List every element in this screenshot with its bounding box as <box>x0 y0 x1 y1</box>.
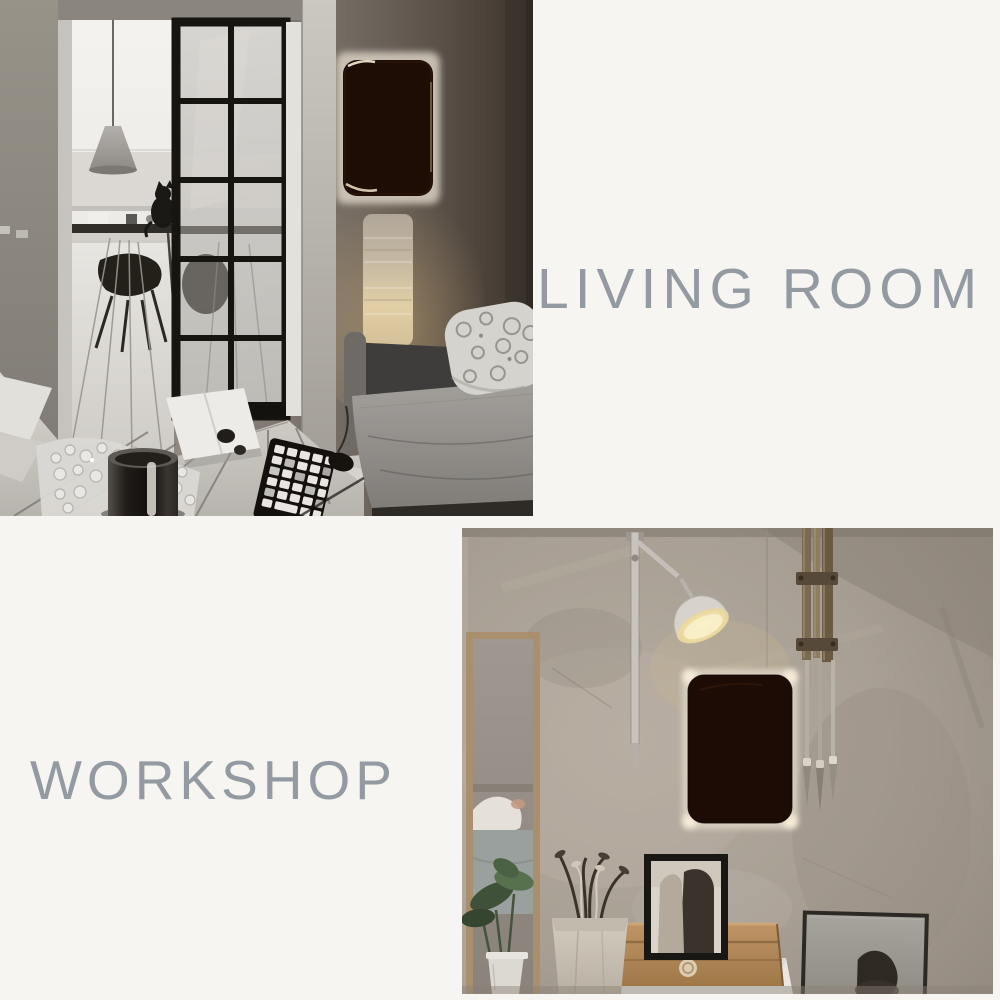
living-room-scene <box>0 0 533 516</box>
product-collage: LIVING ROOM <box>0 0 1000 1000</box>
workshop-scene <box>462 528 993 994</box>
box-logo <box>679 959 697 977</box>
workshop-label: WORKSHOP <box>30 753 397 808</box>
door-jamb-right <box>286 0 336 462</box>
metal-bucket <box>101 448 185 516</box>
paper-floor-lamp <box>363 214 413 346</box>
framed-photo <box>644 854 728 960</box>
living-room-photo <box>0 0 533 516</box>
french-glass-door <box>172 22 290 418</box>
workshop-photo <box>462 528 993 994</box>
wall-light-panel <box>682 669 798 829</box>
living-room-label: LIVING ROOM <box>537 261 983 318</box>
door-header <box>58 0 304 20</box>
door-jamb-left <box>58 0 72 455</box>
leaning-art-frame <box>803 912 927 994</box>
photo-bottom-shadow <box>462 986 993 994</box>
mirror-with-bed-reflection <box>466 632 540 994</box>
wall-light-panel <box>336 52 440 204</box>
doorway-interior <box>58 0 176 455</box>
